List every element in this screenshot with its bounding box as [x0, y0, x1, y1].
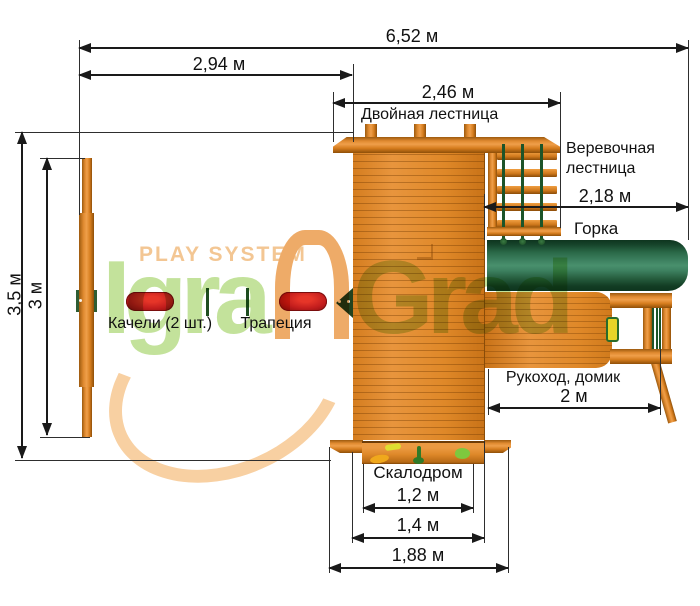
ladder-post-stub-3 — [464, 124, 476, 138]
swing-seat-1 — [126, 292, 174, 311]
base-beam-left-wing — [330, 440, 363, 453]
dim-climb-outer-label: 1,88 м — [358, 546, 478, 565]
monkeybar-rung-3 — [659, 306, 661, 351]
label-climbing-wall: Скалодром — [338, 463, 498, 483]
dim-slide-span-line — [484, 206, 688, 208]
trapeze-rope-1 — [206, 288, 209, 316]
monkeybar-top-beam — [610, 293, 672, 308]
rope-ladder-knob-1 — [500, 238, 507, 245]
rope-ladder-rung-2 — [497, 169, 557, 177]
dim-slide-span-label: 2,18 м — [545, 187, 665, 206]
rope-ladder-base-beam — [487, 227, 561, 236]
ladder-post-stub-1 — [365, 124, 377, 138]
rope-ladder-rung-1 — [497, 152, 557, 160]
double-ladder-beam — [333, 137, 560, 153]
swing-seat-2 — [279, 292, 327, 311]
label-slide: Горка — [574, 219, 618, 239]
dim-ladder-span-line — [333, 102, 560, 104]
rope-ladder-knob-2 — [519, 238, 526, 245]
dim-climb-inner-line — [363, 507, 473, 509]
dim-depth-outer-label: 3,5 м — [6, 260, 25, 330]
monkeybar-bottom-beam — [610, 349, 672, 364]
dim-depth-inner-line — [46, 158, 48, 435]
platform-post-cap — [415, 241, 431, 257]
label-trapeze: Трапеция — [221, 314, 331, 334]
dim-climb-outer-line — [329, 567, 508, 569]
dim-swing-span-line — [79, 74, 352, 76]
house-body — [485, 292, 612, 368]
slide-body — [487, 240, 688, 291]
dim-monkeybar-span-line — [488, 407, 660, 409]
dim-ladder-span-label: 2,46 м — [388, 83, 508, 102]
dim-total-width-line — [79, 47, 688, 49]
monkeybar-rung-2 — [656, 306, 658, 351]
dim-monkeybar-span-label: 2 м — [514, 387, 634, 406]
label-double-ladder: Двойная лестница — [361, 105, 498, 125]
rope-ladder-rail — [488, 146, 497, 228]
label-rope-ladder: Веревочная лестница — [566, 139, 672, 179]
base-beam-right-wing — [484, 440, 511, 453]
watermark-brand-text: PLAY SYSTEM — [139, 243, 307, 267]
house-handle — [606, 317, 619, 342]
label-swings: Качели (2 шт.) — [90, 314, 230, 334]
label-monkeybar-house: Рукоход, домик — [483, 368, 643, 388]
dim-climb-mid-line — [352, 537, 484, 539]
dim-depth-inner-label: 3 м — [27, 266, 46, 326]
trapeze-rope-2 — [246, 288, 249, 316]
ladder-post-stub-2 — [414, 124, 426, 138]
dim-swing-span-label: 2,94 м — [159, 55, 279, 74]
platform-deck — [353, 148, 485, 440]
dim-climb-mid-label: 1,4 м — [358, 516, 478, 535]
playground-plan-diagram: PLAY SYSTEM Igra Grad 6,52 м 2,94 м 2,46… — [0, 0, 700, 606]
dim-total-width-label: 6,52 м — [352, 27, 472, 46]
dim-climb-inner-label: 1,2 м — [358, 486, 478, 505]
monkeybar-rung-1 — [652, 306, 654, 351]
rope-ladder-knob-3 — [538, 238, 545, 245]
monkeybar-brace — [650, 358, 677, 424]
